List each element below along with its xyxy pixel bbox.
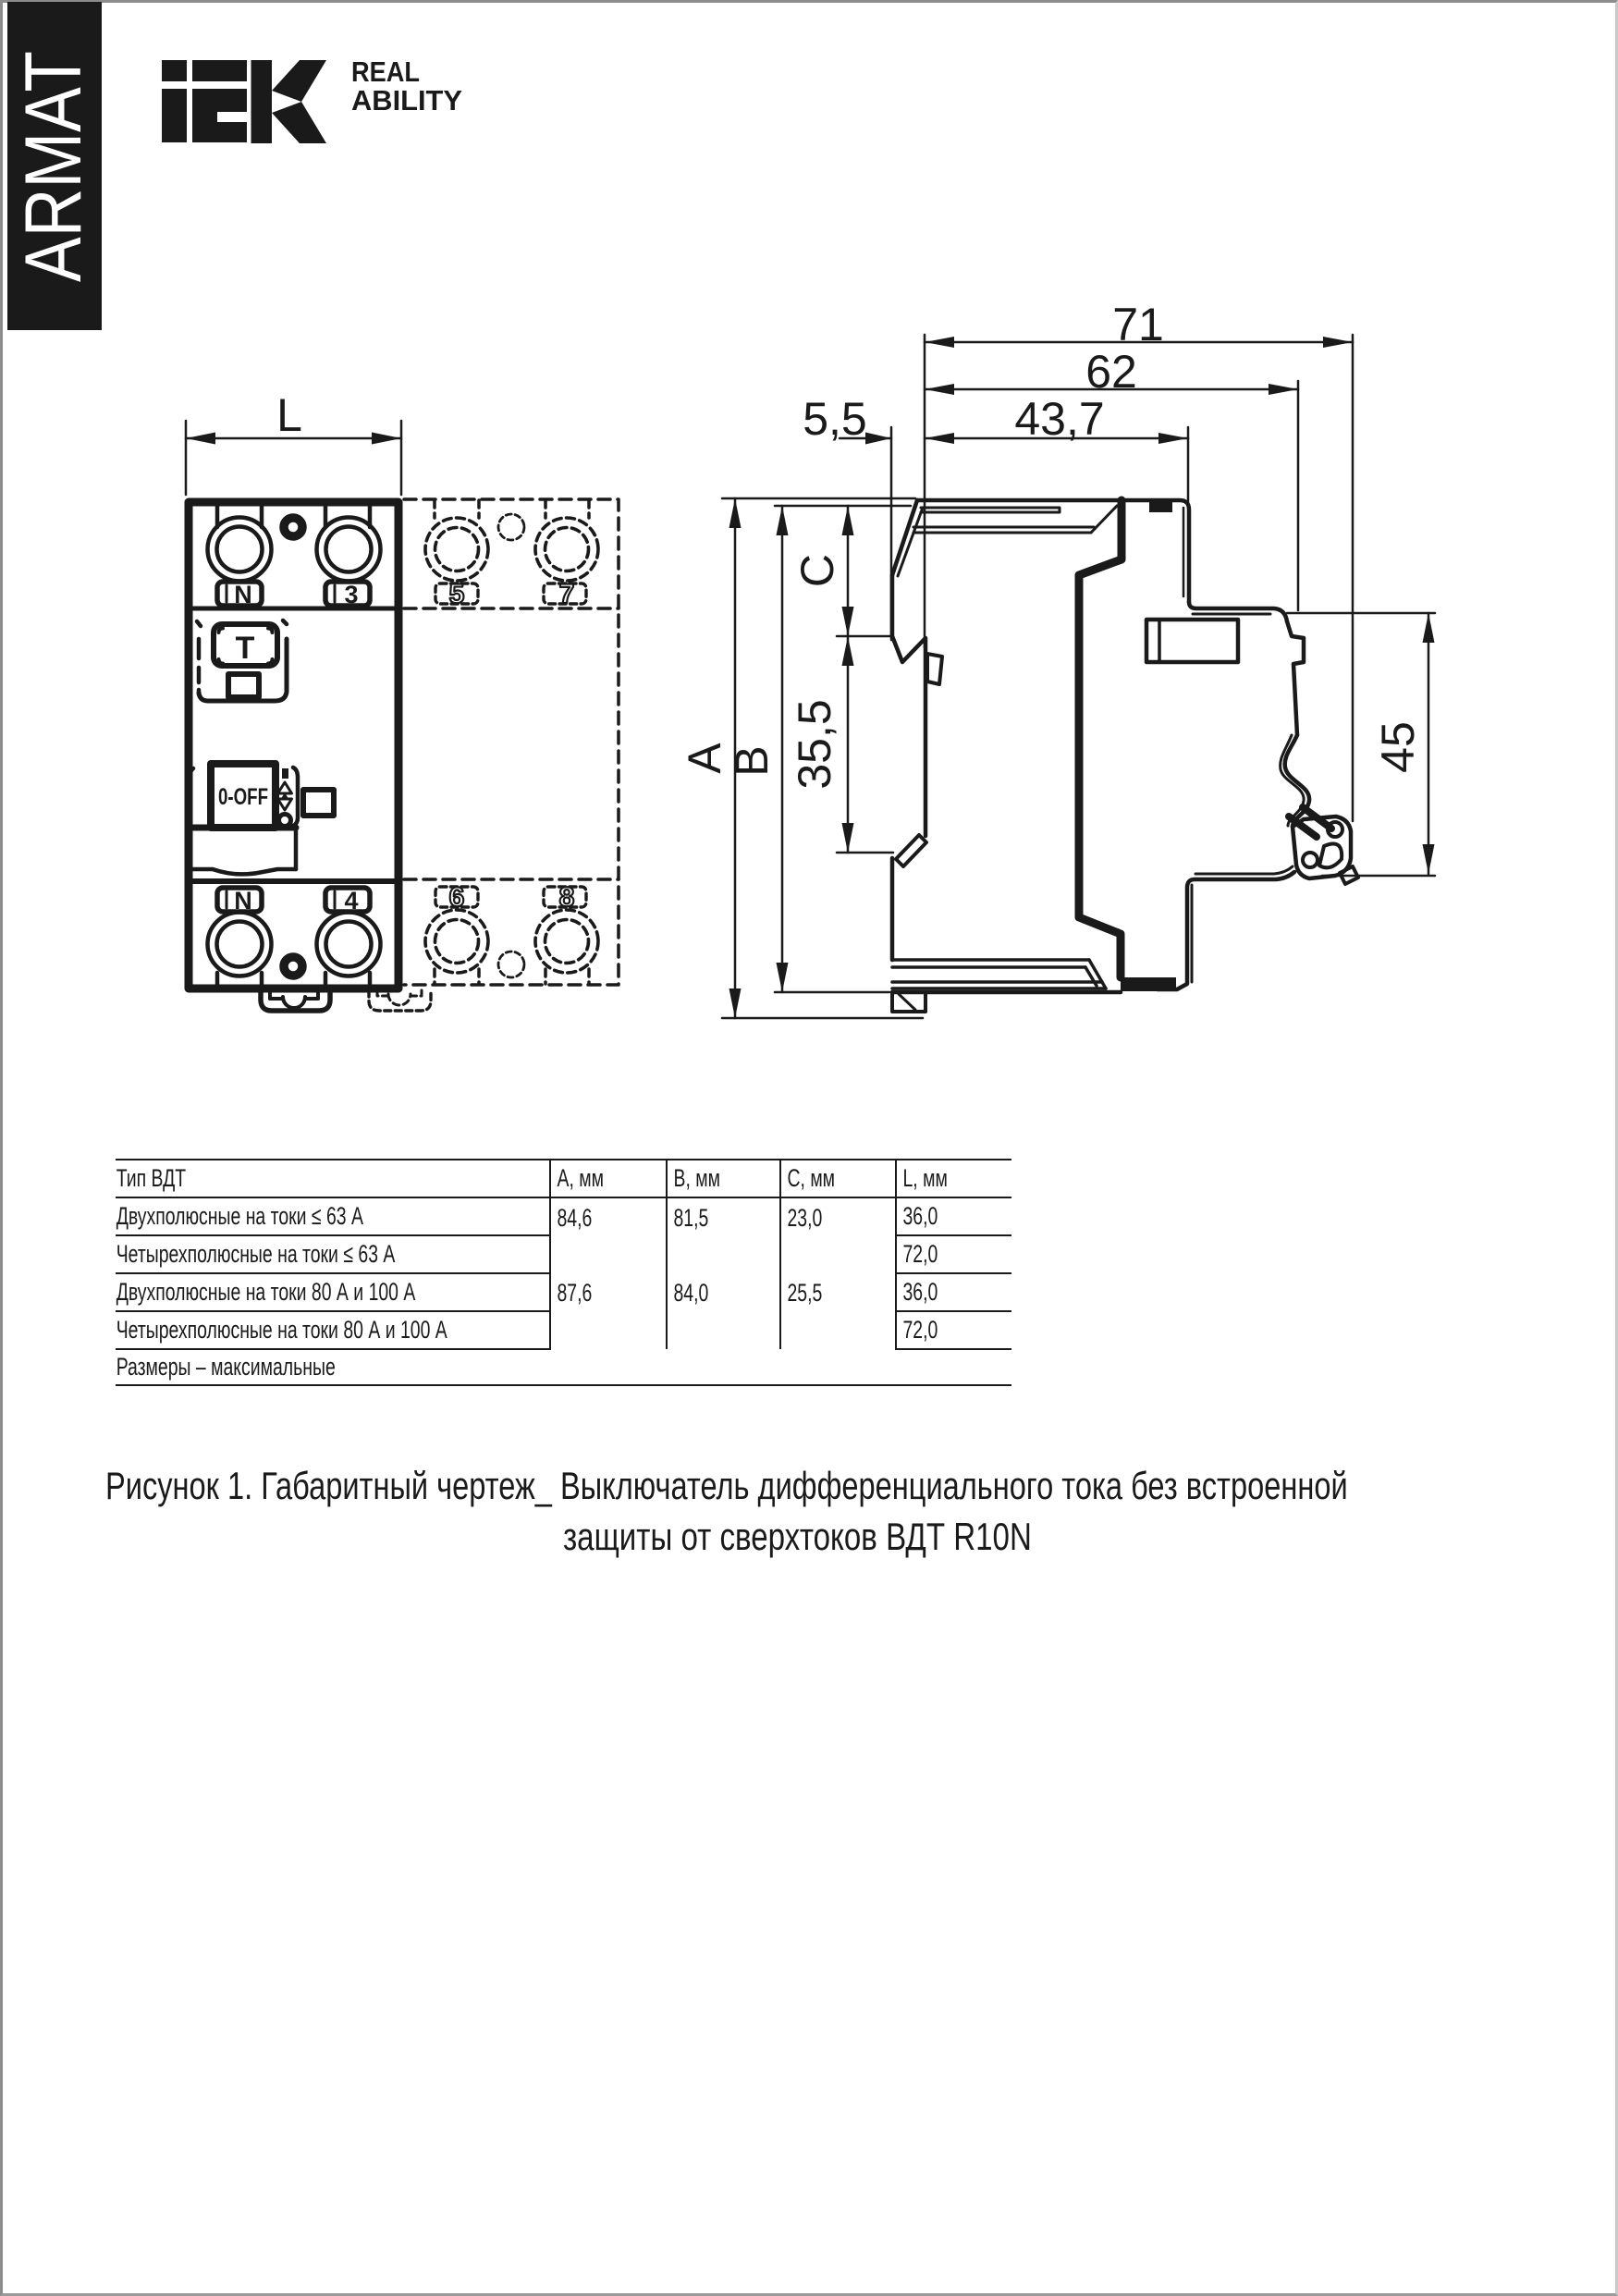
svg-text:71: 71 [1112,299,1164,350]
svg-text:7: 7 [559,579,575,609]
svg-text:A: A [679,743,730,774]
svg-text:45: 45 [1372,721,1424,773]
svg-text:5,5: 5,5 [803,393,867,445]
svg-text:N: N [234,581,252,608]
svg-text:0-OFF: 0-OFF [218,784,268,810]
svg-text:5: 5 [449,579,465,609]
svg-text:L: L [276,389,302,441]
svg-text:43,7: 43,7 [1014,393,1104,445]
svg-text:8: 8 [559,882,575,913]
svg-text:B: B [726,745,778,776]
svg-text:35,5: 35,5 [789,699,840,789]
svg-text:62: 62 [1085,346,1137,398]
svg-text:3: 3 [344,581,358,608]
svg-text:T: T [236,631,255,666]
svg-text:6: 6 [449,882,465,913]
svg-text:C: C [791,554,843,587]
